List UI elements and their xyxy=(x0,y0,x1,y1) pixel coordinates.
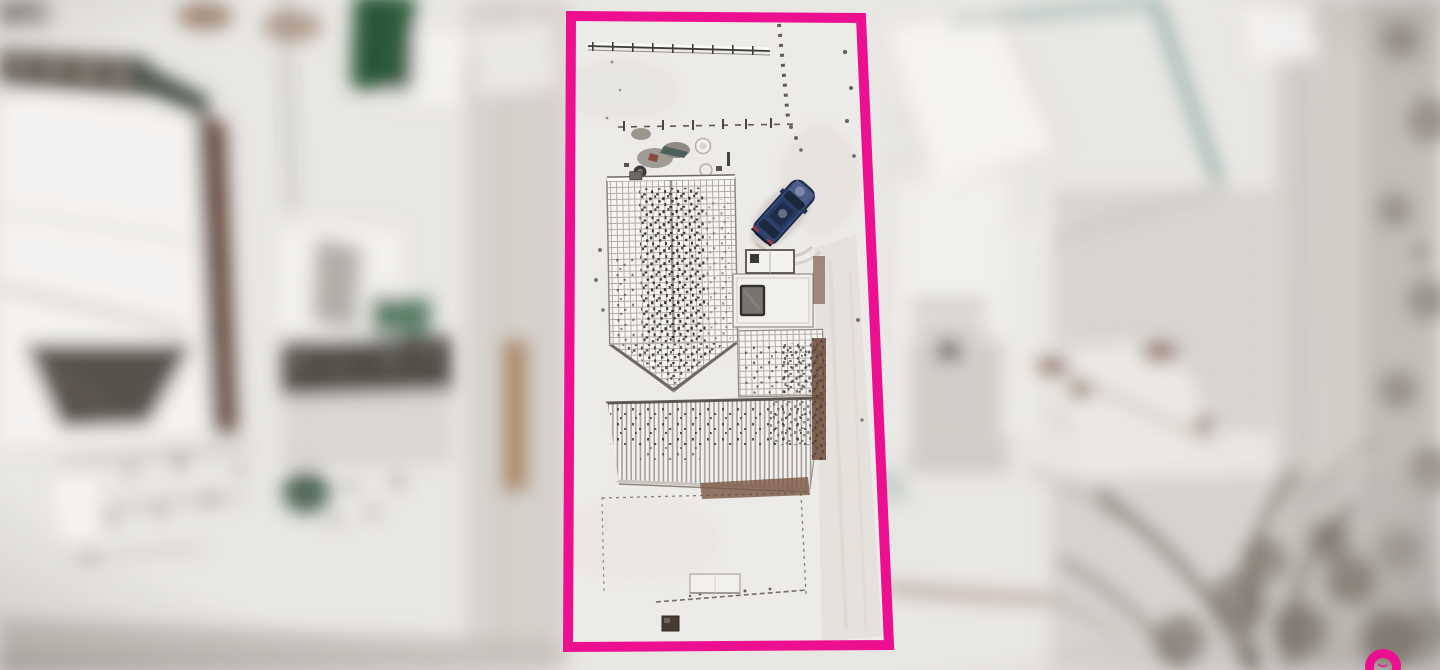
vignette xyxy=(0,0,1440,670)
aerial-photo xyxy=(0,0,1440,670)
